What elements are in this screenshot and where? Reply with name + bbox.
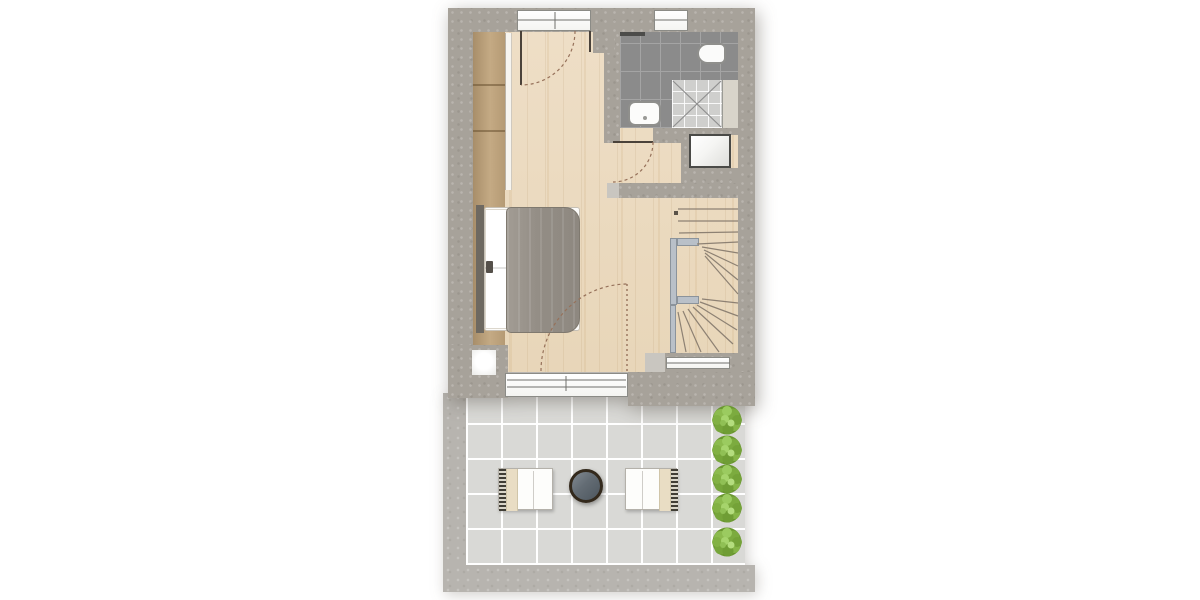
- terrace-wall-left: [443, 393, 466, 592]
- wall-right: [738, 8, 755, 398]
- double-bed: [476, 205, 580, 333]
- wall-below-shaft: [681, 168, 740, 184]
- bathroom-window-north: [654, 10, 688, 31]
- chair-seam: [533, 471, 534, 509]
- lounge-chair-right: [625, 468, 677, 510]
- lounge-chair-left: [498, 468, 553, 510]
- bedside-item: [486, 261, 493, 273]
- floor-plan: [0, 0, 1200, 600]
- chair-headrest-texture: [499, 469, 506, 511]
- wall-corner-se: [628, 372, 755, 406]
- wall-bathroom-south-a: [604, 128, 613, 143]
- bedroom-window-north: [517, 10, 591, 31]
- stair-railing-arm-bottom: [677, 296, 699, 304]
- terrace: [443, 390, 755, 592]
- chair-headrest-texture: [671, 469, 678, 511]
- terrace-door-glazing: [505, 373, 628, 397]
- bed-headboard: [476, 205, 484, 333]
- stair-railing-arm-top: [677, 238, 699, 246]
- wardrobe-shelf-line: [472, 130, 505, 132]
- wardrobe-front: [505, 33, 512, 190]
- stair-railing-lower: [670, 305, 676, 353]
- wall-hall-stair-cap: [607, 183, 619, 198]
- shower: [672, 80, 722, 128]
- stair-window: [666, 357, 730, 369]
- wall-left: [448, 8, 473, 398]
- terrace-wall-bottom: [443, 565, 755, 592]
- glass-shaft: [689, 134, 731, 168]
- wall-hall-stair: [607, 183, 740, 198]
- wall-top: [448, 8, 755, 32]
- stair-railing-bar: [670, 238, 677, 305]
- wardrobe-shelf-line: [472, 84, 505, 86]
- bed-duvet: [506, 207, 580, 333]
- wall-stair-south-cap: [645, 353, 665, 372]
- chair-cushion-stripe: [659, 469, 671, 511]
- chair-seam: [642, 471, 643, 509]
- toilet: [697, 43, 726, 64]
- wall-shaft-jamb: [681, 134, 689, 168]
- patio-table: [569, 469, 603, 503]
- chair-cushion-stripe: [506, 469, 518, 511]
- washbasin: [628, 101, 661, 126]
- building: [448, 8, 755, 398]
- shower-niche: [722, 80, 738, 128]
- corner-niche-window: [472, 350, 496, 375]
